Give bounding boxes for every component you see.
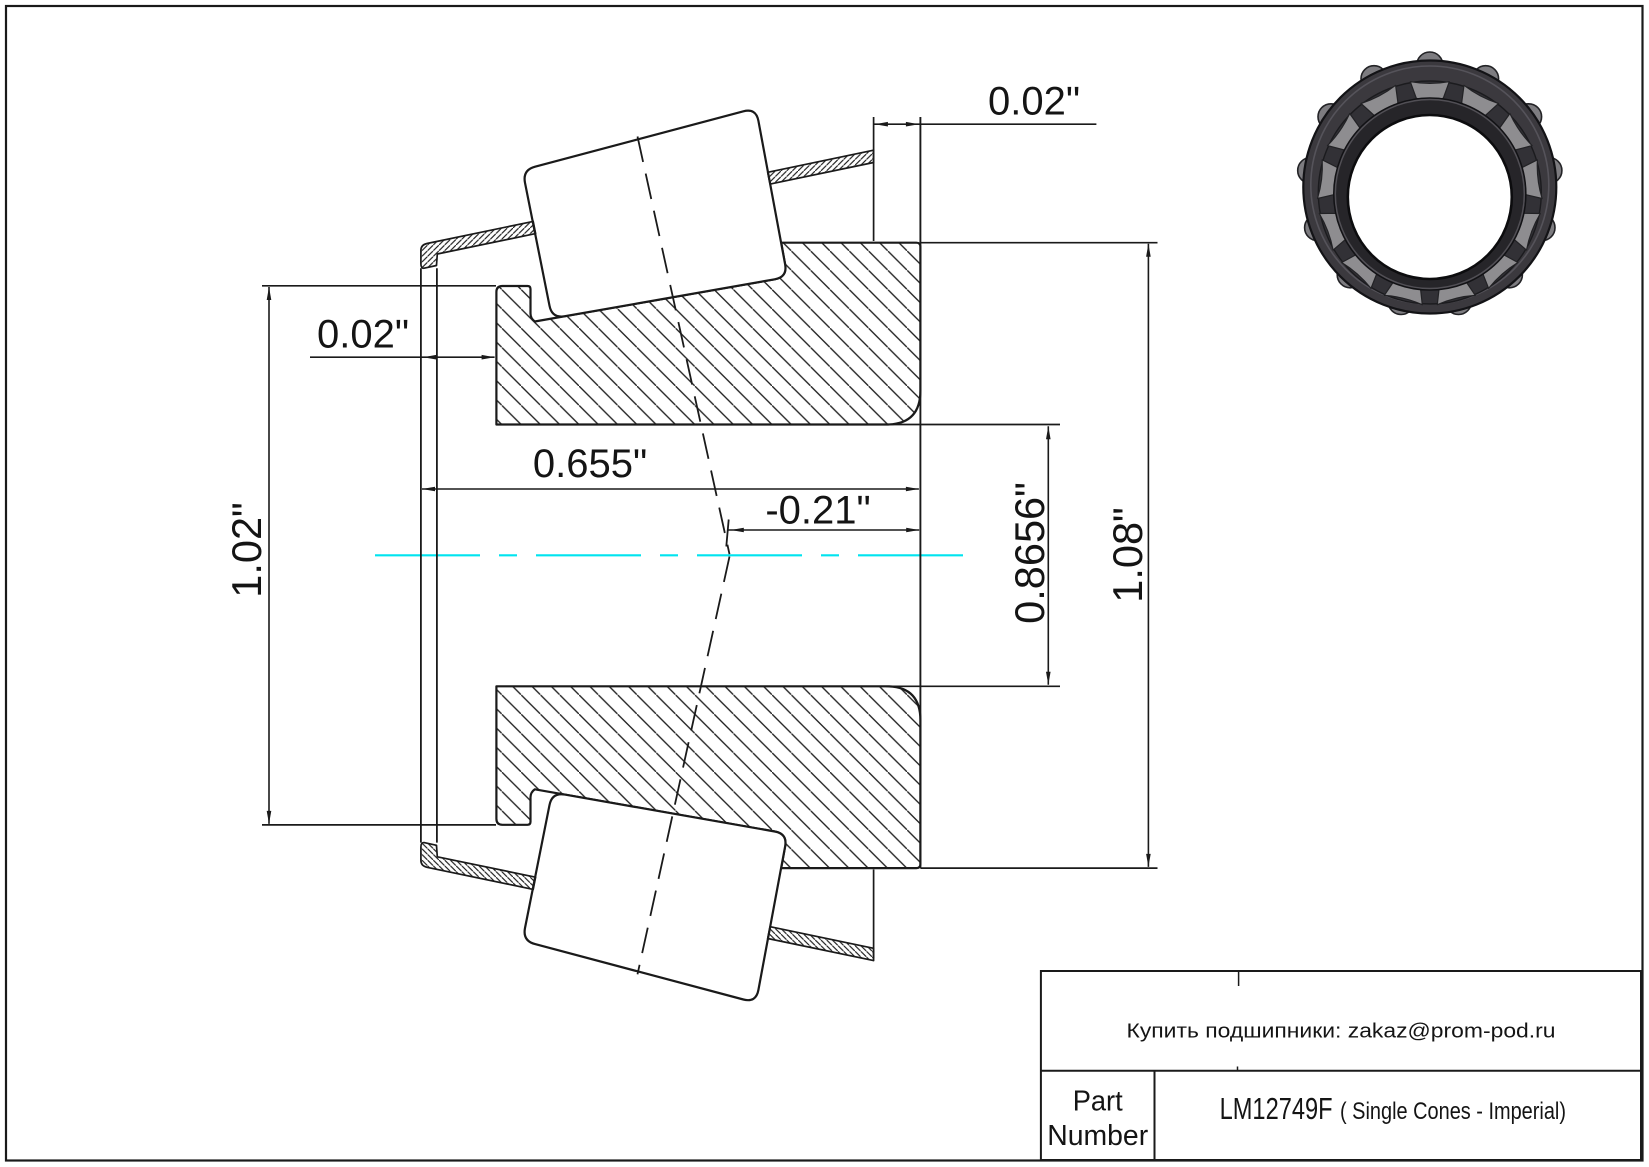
- svg-text:-0.21": -0.21": [765, 488, 870, 532]
- svg-text:( Single Cones - Imperial): ( Single Cones - Imperial): [1340, 1098, 1566, 1125]
- svg-text:0.655": 0.655": [533, 442, 647, 486]
- svg-text:0.8656": 0.8656": [1006, 482, 1053, 624]
- svg-text:1.08": 1.08": [1104, 507, 1151, 603]
- svg-text:Купить подшипники: zakaz@prom-: Купить подшипники: zakaz@prom-pod.ru: [1127, 1020, 1556, 1043]
- svg-text:0.02": 0.02": [317, 313, 409, 357]
- svg-text:Part: Part: [1073, 1086, 1123, 1118]
- svg-text:LM12749F: LM12749F: [1220, 1091, 1333, 1126]
- svg-text:Number: Number: [1047, 1120, 1148, 1152]
- svg-text:1.02": 1.02": [223, 502, 270, 598]
- svg-text:0.02": 0.02": [988, 80, 1080, 124]
